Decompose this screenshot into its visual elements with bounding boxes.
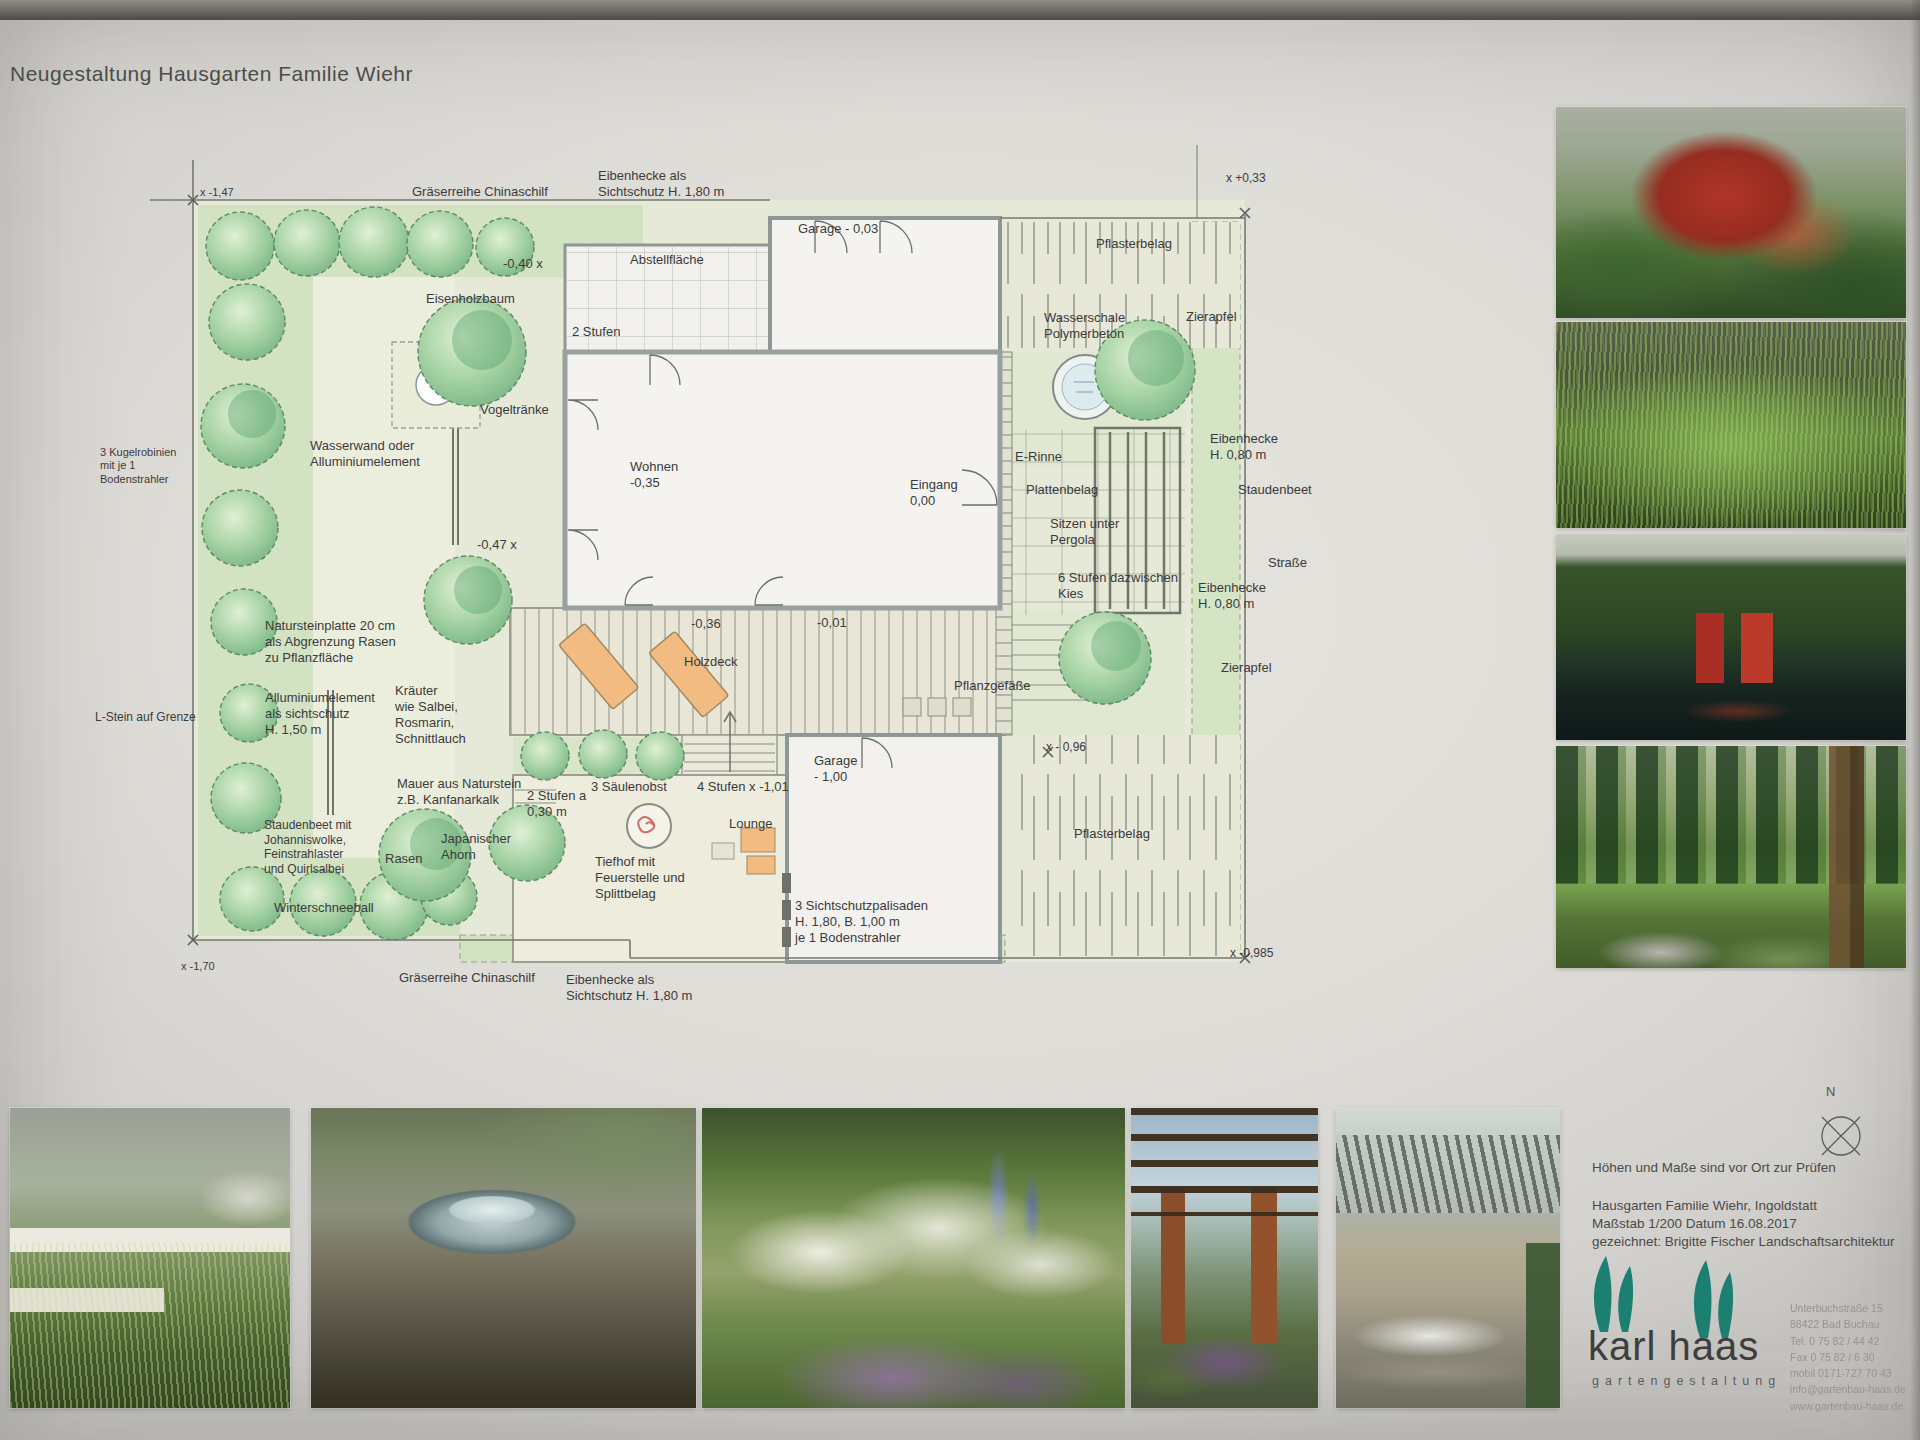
- photo-brick-pergola: [1131, 1108, 1318, 1408]
- address-line: 88422 Bad Buchau: [1790, 1316, 1920, 1332]
- logo-address: Unterbuchstraße 15 88422 Bad Buchau Tel.…: [1790, 1300, 1920, 1414]
- plan-sheet: Neugestaltung Hausgarten Familie Wiehr: [0, 0, 1920, 1440]
- address-line: Fax 0 75 82 / 6 30: [1790, 1349, 1920, 1365]
- photo-hedge-red-wall-pool: [1556, 534, 1906, 740]
- photo-columnar-trees: [1556, 746, 1906, 968]
- photo-table-edge: [0, 0, 1920, 20]
- photo-ornamental-grasses: [1556, 322, 1906, 528]
- compass-north-label: N: [1826, 1084, 1835, 1099]
- photo-right-edge-shadow: [1910, 0, 1920, 1440]
- logo-name: karl haas: [1588, 1324, 1759, 1369]
- photo-stone-water-bowl: [311, 1108, 696, 1408]
- photo-white-walls-grasses: [10, 1108, 290, 1408]
- scale-and-date: Maßstab 1/200 Datum 16.08.2017: [1592, 1215, 1920, 1233]
- project-name: Hausgarten Familie Wiehr, Ingoldstatt: [1592, 1197, 1920, 1215]
- address-line: Tel. 0 75 82 / 44 42: [1790, 1333, 1920, 1349]
- photo-red-maple: [1556, 107, 1906, 318]
- drawn-by: gezeichnet: Brigitte Fischer Landschafts…: [1592, 1233, 1920, 1251]
- address-line: Unterbuchstraße 15: [1790, 1300, 1920, 1316]
- photo-flower-meadow: [702, 1108, 1125, 1408]
- title-block: Höhen und Maße sind vor Ort zur Prüfen H…: [1592, 1160, 1920, 1252]
- logo-subtitle: gartengestaltung: [1592, 1374, 1781, 1388]
- address-line: info@gartenbau-haas.de: [1790, 1381, 1920, 1397]
- photo-louvered-pergola: [1336, 1108, 1560, 1408]
- plan-note: Höhen und Maße sind vor Ort zur Prüfen: [1592, 1160, 1920, 1175]
- karl-haas-logo: karl haas gartengestaltung: [1588, 1262, 1788, 1392]
- address-line: www.gartenbau-haas.de: [1790, 1398, 1920, 1414]
- address-line: mobil 0171-727 70 43: [1790, 1365, 1920, 1381]
